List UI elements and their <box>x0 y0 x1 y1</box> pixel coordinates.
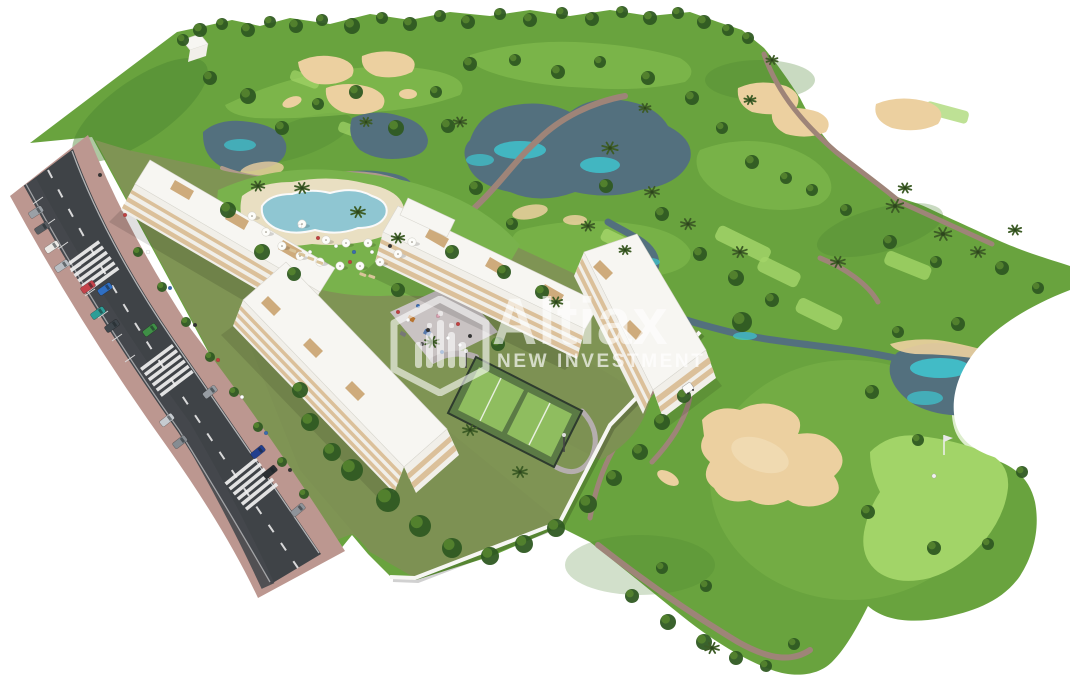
palm-crown <box>904 187 907 190</box>
palm-crown <box>644 107 647 110</box>
tree-highlight <box>928 542 936 550</box>
person <box>416 304 420 308</box>
tree-highlight <box>730 652 738 660</box>
tree-highlight <box>343 460 355 472</box>
water-highlight <box>224 139 256 151</box>
palm-crown <box>624 249 627 252</box>
tree-highlight <box>288 268 296 276</box>
person <box>436 314 440 318</box>
palm-crown <box>771 59 774 62</box>
parasol-pole <box>345 242 347 244</box>
tree-highlight <box>893 327 900 334</box>
water-highlight <box>580 157 620 173</box>
tree-highlight <box>221 203 230 212</box>
water-highlight <box>733 332 757 340</box>
tree-highlight <box>470 182 478 190</box>
person <box>98 173 102 177</box>
tree-highlight <box>495 9 502 16</box>
tree-highlight <box>492 338 500 346</box>
water-highlight <box>466 154 494 166</box>
palm-crown <box>608 146 612 150</box>
parasol-pole <box>379 261 381 263</box>
tree-highlight <box>446 246 454 254</box>
tree-highlight <box>389 121 398 130</box>
palm-tree <box>1009 225 1022 234</box>
person <box>456 322 460 326</box>
bunker <box>399 89 417 99</box>
tree-highlight <box>435 11 442 18</box>
tree-highlight <box>807 185 814 192</box>
person <box>396 310 400 314</box>
tree-highlight <box>378 489 391 502</box>
tree-highlight <box>673 8 680 15</box>
palm-crown <box>686 222 689 225</box>
person <box>308 250 312 254</box>
tree-highlight <box>317 15 324 22</box>
palm-tree <box>899 183 912 192</box>
tree-highlight <box>661 615 670 624</box>
tree-highlight <box>278 458 284 464</box>
tree-highlight <box>586 13 594 21</box>
tree-highlight <box>600 180 608 188</box>
tree-highlight <box>302 414 312 424</box>
palm-crown <box>941 232 945 236</box>
tree-highlight <box>464 58 472 66</box>
tree-highlight <box>300 490 306 496</box>
tree-highlight <box>557 8 564 15</box>
parasol-pole <box>251 215 253 217</box>
person <box>446 336 450 340</box>
tree-highlight <box>377 13 384 20</box>
person <box>216 358 220 362</box>
tree-highlight <box>242 24 250 32</box>
palm-crown <box>587 225 590 228</box>
tree-highlight <box>217 19 224 26</box>
tree-highlight <box>324 444 334 454</box>
tree-highlight <box>866 386 874 394</box>
person <box>193 323 197 327</box>
palm-crown <box>257 185 260 188</box>
tree-highlight <box>717 123 724 130</box>
person <box>468 334 472 338</box>
person <box>388 244 392 248</box>
tree-highlight <box>404 18 412 26</box>
tree-highlight <box>182 318 188 324</box>
person <box>168 286 172 290</box>
tree-highlight <box>686 92 694 100</box>
person <box>240 395 244 399</box>
person <box>123 213 127 217</box>
tree-highlight <box>694 248 702 256</box>
rough-shade <box>565 535 715 595</box>
tree-highlight <box>626 590 634 598</box>
person <box>352 250 356 254</box>
tree-highlight <box>913 435 920 442</box>
tree-highlight <box>644 12 652 20</box>
parasol-pole <box>411 241 413 243</box>
tree-highlight <box>431 87 438 94</box>
palm-crown <box>738 250 741 253</box>
tree-highlight <box>411 516 423 528</box>
palm-crown <box>1014 229 1017 232</box>
tree-highlight <box>265 17 272 24</box>
tree-highlight <box>524 14 532 22</box>
tree-highlight <box>134 248 140 254</box>
tree-highlight <box>194 24 202 32</box>
palm-crown <box>459 121 462 124</box>
tree-highlight <box>697 635 706 644</box>
tree-highlight <box>723 25 730 32</box>
parasol-pole <box>359 265 361 267</box>
person <box>334 244 338 248</box>
tree-highlight <box>254 423 260 429</box>
tree-highlight <box>580 496 590 506</box>
person <box>406 318 410 322</box>
tree-highlight <box>462 16 470 24</box>
palm-crown <box>555 301 558 304</box>
tree-highlight <box>313 99 320 106</box>
tree-highlight <box>206 353 212 359</box>
tree-highlight <box>657 563 664 570</box>
palm-crown <box>397 237 400 240</box>
tree-highlight <box>655 415 664 424</box>
tree-highlight <box>392 284 400 292</box>
parasol-pole <box>281 245 283 247</box>
person <box>316 236 320 240</box>
tree-highlight <box>983 539 990 546</box>
render-canvas: Altiax NEW INVESTMENT <box>0 0 1070 682</box>
tree-highlight <box>743 33 750 40</box>
person <box>420 342 424 346</box>
tree-highlight <box>507 219 514 226</box>
bunker <box>563 215 587 225</box>
golfer <box>932 474 936 478</box>
tree-highlight <box>510 55 517 62</box>
floodlight-head <box>562 433 566 437</box>
tree-highlight <box>781 173 788 180</box>
tree-highlight <box>766 294 774 302</box>
water-highlight <box>907 391 943 405</box>
palm-crown <box>518 470 521 473</box>
tree-highlight <box>761 661 768 668</box>
tree-highlight <box>1017 467 1024 474</box>
person <box>348 260 352 264</box>
palm-crown <box>430 340 433 343</box>
palm-crown <box>300 186 303 189</box>
tree-highlight <box>931 257 938 264</box>
palm-crown <box>893 204 897 208</box>
tree-highlight <box>642 72 650 80</box>
parasol-pole <box>339 265 341 267</box>
tree-highlight <box>734 313 745 324</box>
parasol-pole <box>265 231 267 233</box>
tree-highlight <box>746 156 754 164</box>
parasol-pole <box>367 242 369 244</box>
palm-crown <box>356 210 359 213</box>
tree-highlight <box>698 16 706 24</box>
tree-highlight <box>617 7 624 14</box>
palm-crown <box>650 190 653 193</box>
tree-highlight <box>442 120 450 128</box>
person <box>440 350 444 354</box>
tree-highlight <box>482 548 492 558</box>
palm-crown <box>976 250 979 253</box>
tree-highlight <box>444 539 455 550</box>
tree-highlight <box>884 236 892 244</box>
tree-highlight <box>516 536 526 546</box>
pool-water <box>262 190 387 232</box>
tree-highlight <box>255 245 264 254</box>
palm-crown <box>365 121 368 124</box>
tree-highlight <box>498 266 506 274</box>
tree-highlight <box>241 89 250 98</box>
palm-crown <box>710 646 713 649</box>
floodlight-head <box>464 349 468 353</box>
tree-highlight <box>345 19 354 28</box>
tree-highlight <box>952 318 960 326</box>
tree-highlight <box>276 122 284 130</box>
tree-highlight <box>701 581 708 588</box>
tree-highlight <box>204 72 212 80</box>
person <box>370 250 374 254</box>
scene-svg <box>0 0 1070 682</box>
person <box>146 250 150 254</box>
palm-crown <box>836 260 839 263</box>
tree-highlight <box>552 66 560 74</box>
tree-highlight <box>548 520 558 530</box>
tree-highlight <box>607 471 616 480</box>
tree-highlight <box>633 445 642 454</box>
tree-highlight <box>290 20 298 28</box>
tree-highlight <box>350 86 358 94</box>
tree-highlight <box>595 57 602 64</box>
tree-highlight <box>841 205 848 212</box>
palm-crown <box>749 99 752 102</box>
tree-highlight <box>729 271 738 280</box>
tree-highlight <box>862 506 870 514</box>
parasol-pole <box>397 253 399 255</box>
person <box>298 224 302 228</box>
palm-crown <box>468 428 471 431</box>
tree-highlight <box>656 208 664 216</box>
tree-highlight <box>536 286 544 294</box>
tree-highlight <box>178 35 185 42</box>
tree-highlight <box>293 383 302 392</box>
parasol-pole <box>325 239 327 241</box>
tree-highlight <box>1033 283 1040 290</box>
tree-highlight <box>230 388 236 394</box>
person <box>458 343 462 347</box>
person <box>264 431 268 435</box>
tree-highlight <box>789 639 796 646</box>
tree-highlight <box>158 283 164 289</box>
tree-highlight <box>996 262 1004 270</box>
person <box>288 468 292 472</box>
person <box>426 328 430 332</box>
